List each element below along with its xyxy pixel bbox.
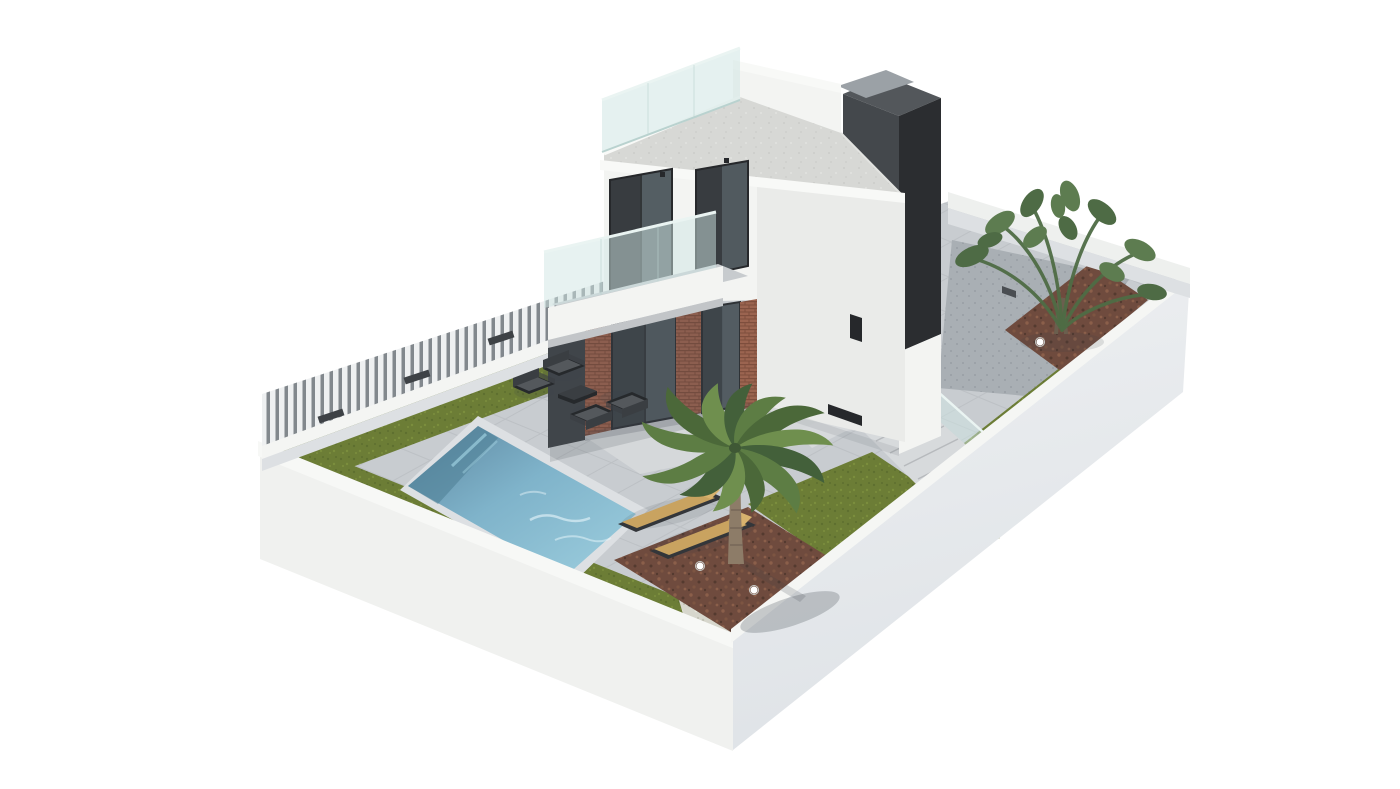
render-canvas: 3D architectural rendering of a modern t… bbox=[0, 0, 1400, 789]
house-right-shading bbox=[757, 183, 905, 442]
slot-window-upper bbox=[850, 314, 862, 342]
villa-render bbox=[0, 0, 1400, 789]
tower-right-face bbox=[899, 98, 941, 352]
facade-spotlight bbox=[660, 172, 665, 177]
facade-spotlight bbox=[724, 158, 729, 163]
